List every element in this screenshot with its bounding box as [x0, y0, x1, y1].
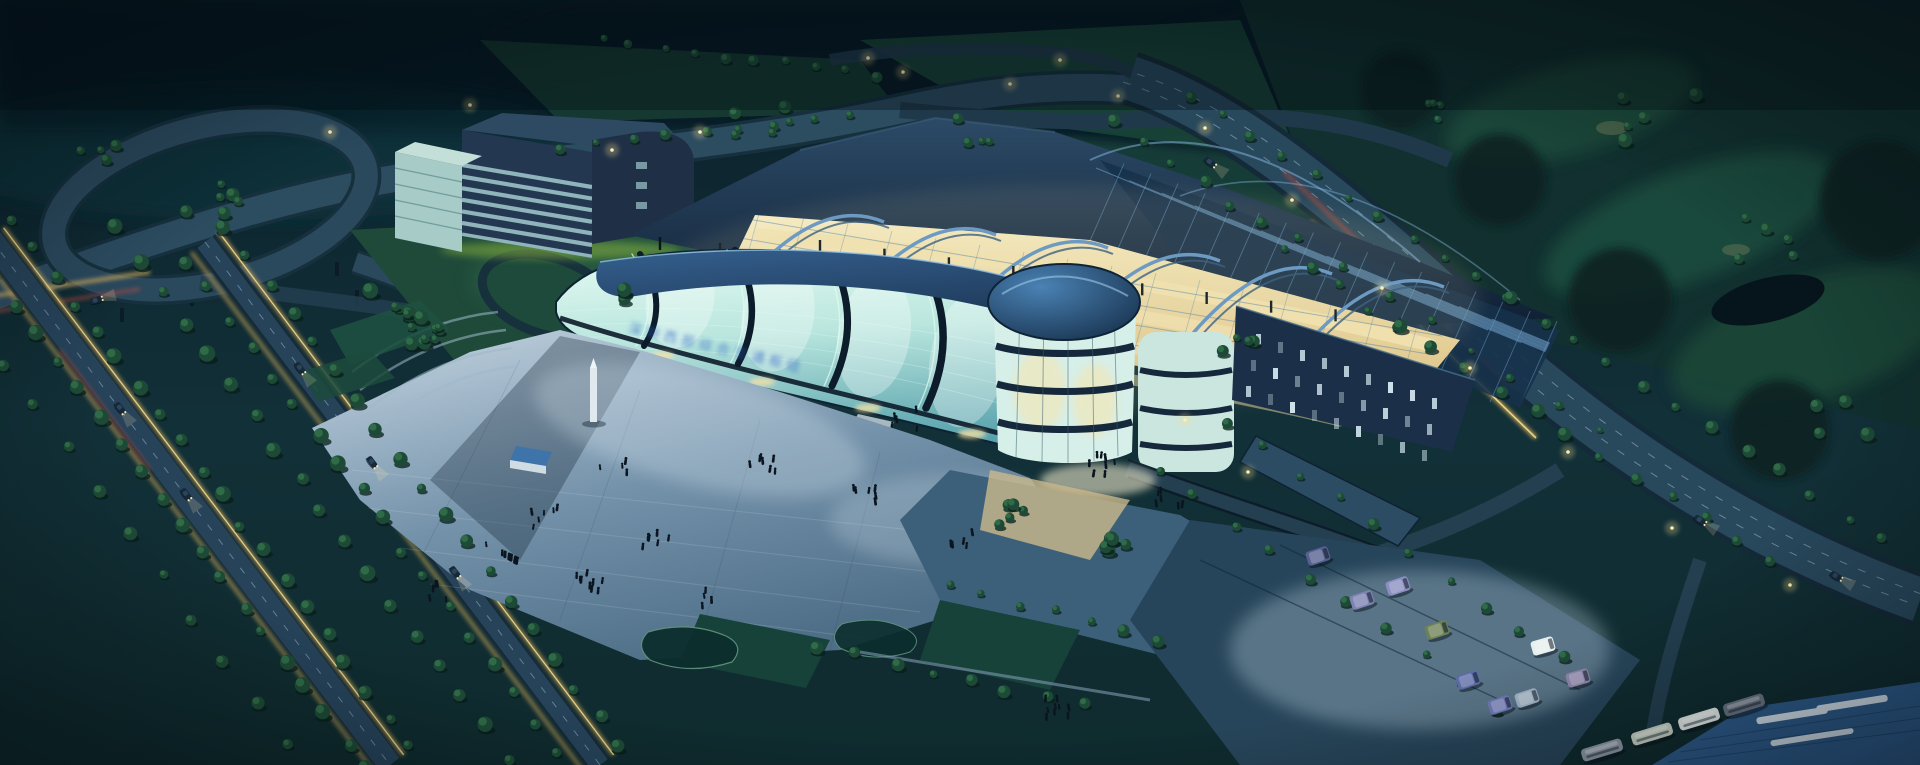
rendering-canvas: 深圳西部综合交通枢纽 [0, 0, 1920, 765]
top-shade [0, 0, 1920, 110]
vignette [0, 0, 1920, 765]
aerial-rendering: 深圳西部综合交通枢纽 [0, 0, 1920, 765]
